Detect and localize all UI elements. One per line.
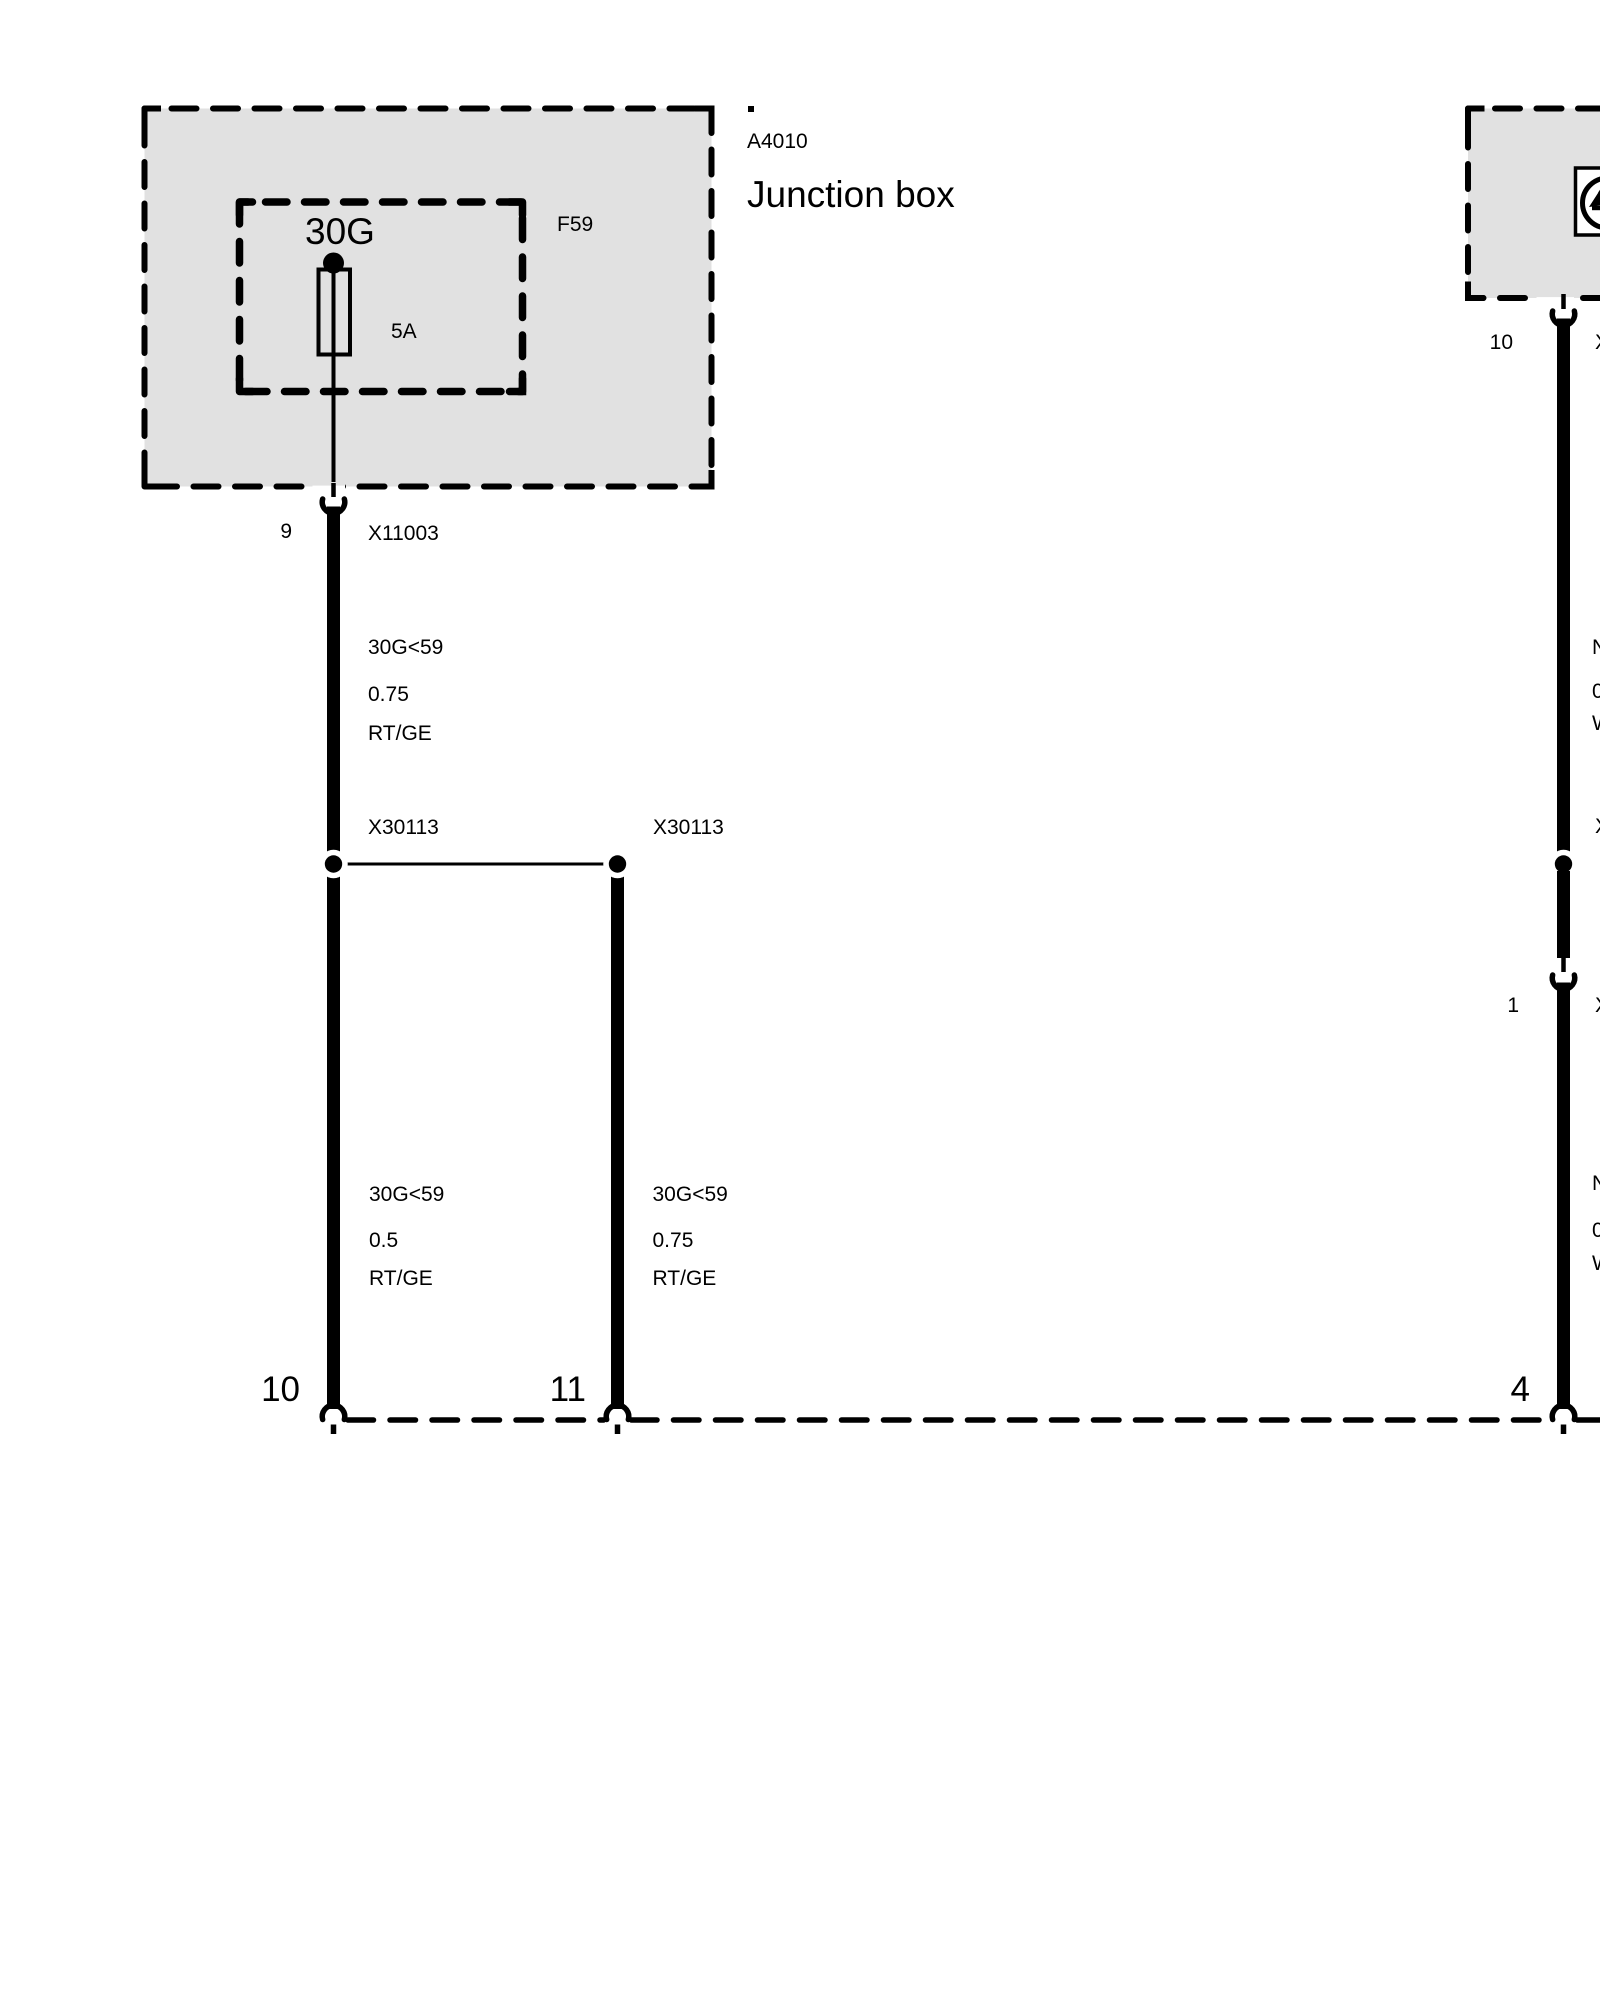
svg-text:10: 10 [1490, 331, 1513, 354]
svg-text:0.75: 0.75 [1592, 680, 1600, 703]
svg-text:9: 9 [280, 520, 292, 543]
svg-text:RT/GE: RT/GE [369, 1267, 433, 1290]
svg-text:X1: X1 [1595, 331, 1600, 354]
svg-text:10: 10 [261, 1370, 300, 1409]
svg-text:Junction box: Junction box [747, 174, 955, 215]
svg-text:11: 11 [550, 1370, 586, 1409]
svg-text:X30113: X30113 [1595, 815, 1600, 838]
svg-text:F59: F59 [557, 213, 593, 236]
svg-text:30G: 30G [305, 211, 375, 252]
svg-text:X3: X3 [1595, 994, 1600, 1017]
svg-text:X30113: X30113 [368, 816, 439, 839]
svg-text:4: 4 [1511, 1370, 1530, 1409]
svg-text:30G<59: 30G<59 [369, 1183, 444, 1206]
svg-text:WS: WS [1592, 712, 1600, 735]
svg-text:WS: WS [1592, 1252, 1600, 1275]
svg-text:X30113: X30113 [653, 816, 724, 839]
svg-text:RT/GE: RT/GE [653, 1267, 717, 1290]
svg-text:0.75: 0.75 [1592, 1219, 1600, 1242]
svg-text:N: N [1592, 1172, 1600, 1195]
svg-text:RT/GE: RT/GE [368, 722, 432, 745]
svg-text:X11003: X11003 [368, 522, 439, 545]
svg-text:0.75: 0.75 [653, 1229, 694, 1252]
svg-text:30G<59: 30G<59 [653, 1183, 728, 1206]
svg-text:N: N [1592, 636, 1600, 659]
svg-text:0.5: 0.5 [369, 1229, 398, 1252]
svg-text:A4010: A4010 [747, 130, 808, 153]
svg-text:1: 1 [1507, 994, 1519, 1017]
svg-text:0.75: 0.75 [368, 683, 409, 706]
svg-text:30G<59: 30G<59 [368, 636, 443, 659]
svg-text:5A: 5A [391, 320, 417, 343]
